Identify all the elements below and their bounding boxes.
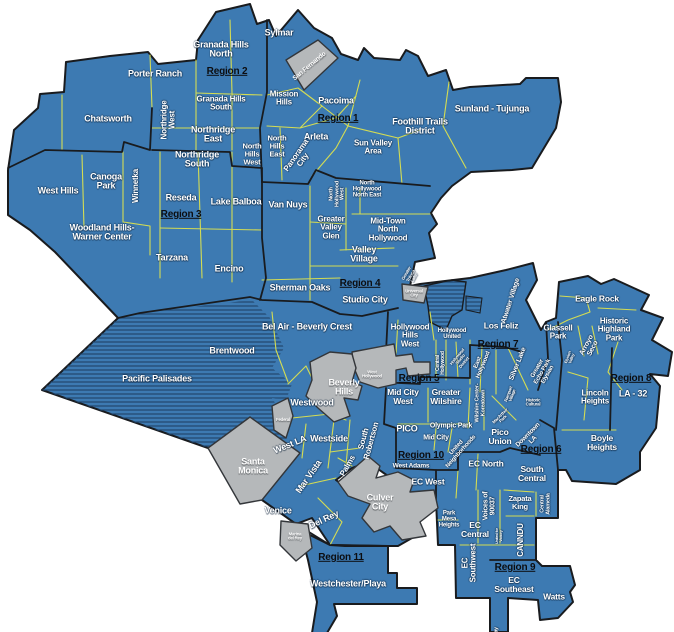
universal-city-area bbox=[402, 284, 428, 303]
reservoir-hatch bbox=[466, 296, 482, 313]
nc-region-map[interactable]: SylmarGranada Hills NorthRegion 2Porter … bbox=[0, 0, 674, 632]
map-canvas bbox=[0, 0, 674, 632]
